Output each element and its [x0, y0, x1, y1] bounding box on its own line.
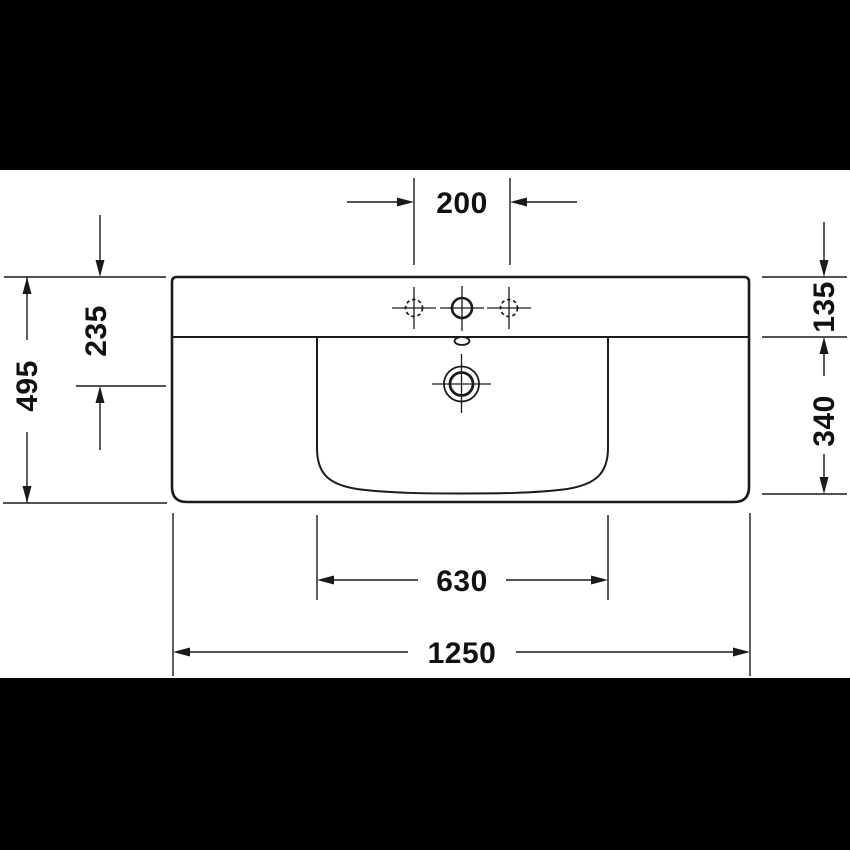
tap-hole-center-icon [440, 286, 484, 331]
dimension-overall-depth: 495 [8, 277, 46, 503]
dimension-drain-from-rear: 235 [80, 215, 113, 450]
dim-label-1250: 1250 [428, 637, 497, 670]
letterbox-top [0, 0, 850, 170]
dim-label-495: 495 [11, 360, 44, 412]
tap-hole-left-icon [392, 287, 436, 329]
dim-label-200: 200 [436, 187, 488, 220]
dim-label-235: 235 [80, 305, 113, 357]
drain-icon [432, 354, 491, 413]
screenshot-canvas: 200 495 235 135 340 [0, 0, 850, 850]
dimension-tap-hole-spacing: 200 [347, 178, 577, 265]
dim-label-630: 630 [436, 565, 488, 598]
dim-label-340: 340 [808, 395, 841, 447]
dimension-basin-depth: 340 [808, 337, 841, 494]
letterbox-bottom [0, 678, 850, 850]
overflow-icon [455, 337, 470, 345]
dimension-overall-width: 1250 [173, 637, 750, 670]
dim-label-135: 135 [808, 281, 841, 333]
washbasin-outline [172, 277, 749, 502]
tap-hole-right-icon [487, 287, 531, 329]
basin-inner-outline [317, 338, 608, 494]
dimension-basin-inner-width: 630 [317, 565, 608, 598]
washbasin-dimension-diagram: 200 495 235 135 340 [0, 0, 850, 850]
